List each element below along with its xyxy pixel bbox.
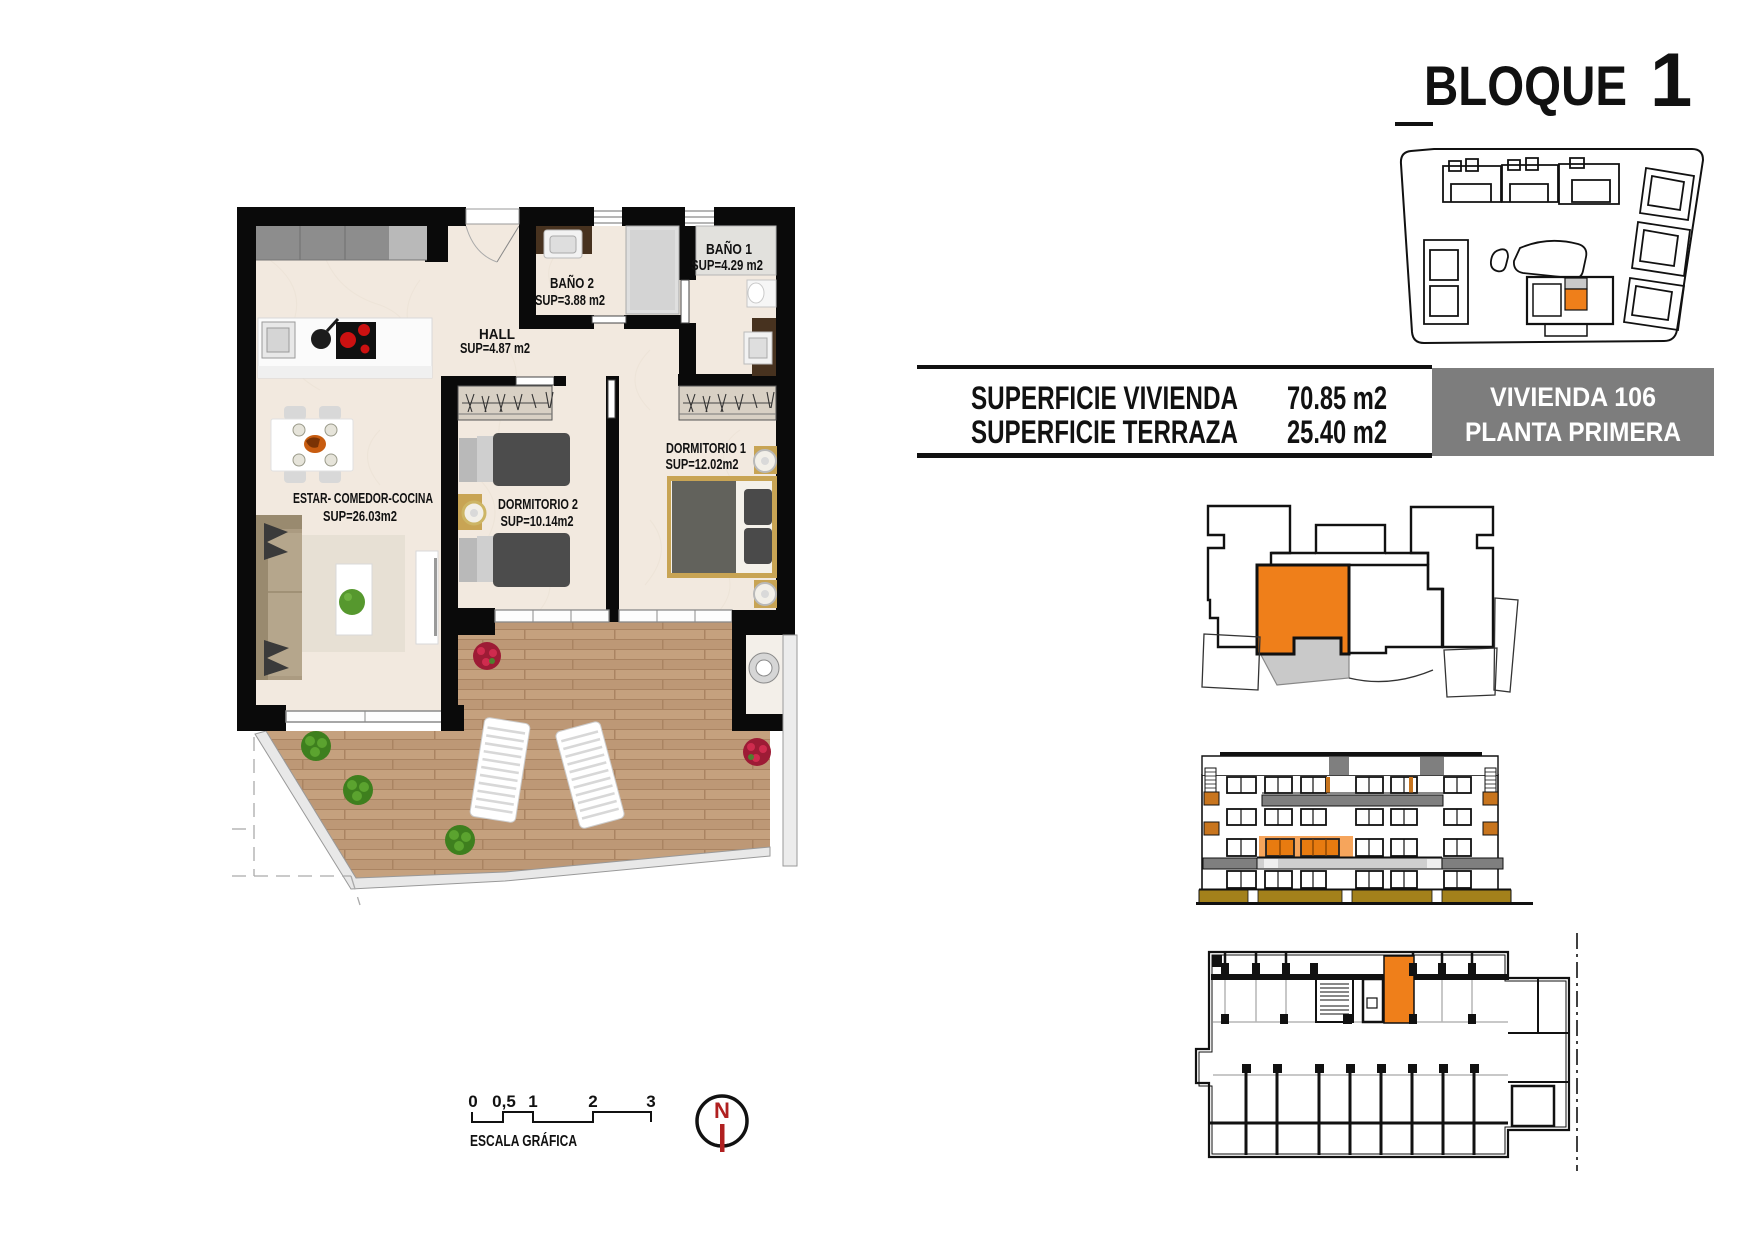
- svg-text:BAÑO 1: BAÑO 1: [706, 240, 752, 258]
- svg-text:1: 1: [528, 1092, 537, 1111]
- svg-text:PLANTA PRIMERA: PLANTA PRIMERA: [1465, 417, 1681, 447]
- svg-text:SUP=12.02m2: SUP=12.02m2: [666, 456, 739, 473]
- svg-text:N: N: [714, 1098, 730, 1123]
- svg-text:VIVIENDA 106: VIVIENDA 106: [1490, 382, 1656, 412]
- svg-text:0,5: 0,5: [492, 1092, 516, 1111]
- svg-text:SUP=4.87 m2: SUP=4.87 m2: [460, 340, 530, 357]
- svg-text:25.40 m2: 25.40 m2: [1287, 414, 1387, 450]
- svg-text:1: 1: [1650, 38, 1692, 123]
- svg-text:2: 2: [588, 1092, 597, 1111]
- svg-text:0: 0: [468, 1092, 477, 1111]
- svg-text:SUPERFICIE TERRAZA: SUPERFICIE TERRAZA: [971, 414, 1238, 450]
- svg-text:ESCALA GRÁFICA: ESCALA GRÁFICA: [470, 1131, 577, 1150]
- svg-text:3: 3: [646, 1092, 655, 1111]
- svg-text:SUP=4.29 m2: SUP=4.29 m2: [691, 257, 763, 274]
- svg-text:SUP=3.88 m2: SUP=3.88 m2: [535, 292, 605, 309]
- svg-text:70.85 m2: 70.85 m2: [1287, 380, 1387, 416]
- svg-text:DORMITORIO 1: DORMITORIO 1: [666, 440, 746, 457]
- svg-text:BLOQUE: BLOQUE: [1424, 54, 1627, 117]
- svg-text:ESTAR- COMEDOR-COCINA: ESTAR- COMEDOR-COCINA: [293, 490, 433, 507]
- svg-text:SUPERFICIE VIVIENDA: SUPERFICIE VIVIENDA: [971, 380, 1238, 416]
- svg-text:BAÑO 2: BAÑO 2: [550, 274, 594, 292]
- svg-text:SUP=10.14m2: SUP=10.14m2: [501, 513, 574, 530]
- svg-text:SUP=26.03m2: SUP=26.03m2: [323, 508, 397, 525]
- svg-text:DORMITORIO 2: DORMITORIO 2: [498, 496, 578, 513]
